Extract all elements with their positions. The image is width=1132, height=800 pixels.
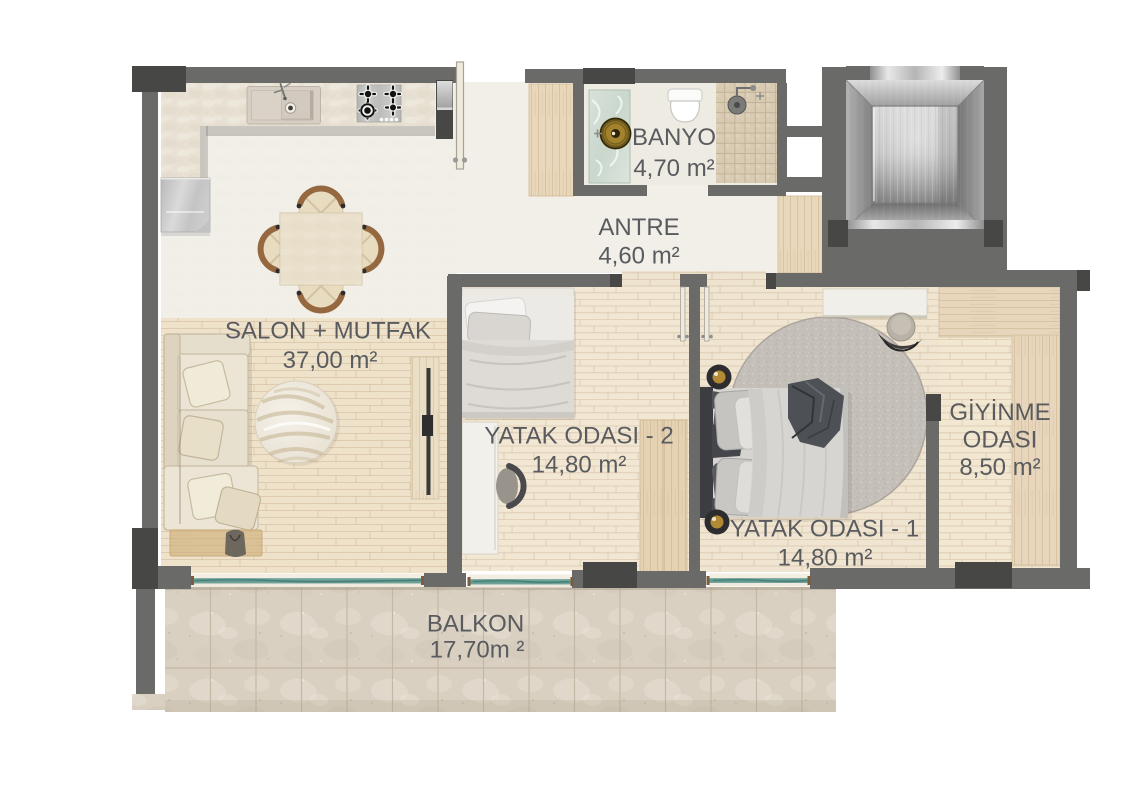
svg-text:GİYİNME: GİYİNME [949, 399, 1050, 426]
svg-text:14,80 m²: 14,80 m² [778, 545, 873, 572]
svg-text:17,70m ²: 17,70m ² [430, 637, 525, 664]
svg-text:4,60 m²: 4,60 m² [598, 243, 679, 270]
svg-text:ANTRE: ANTRE [598, 214, 679, 241]
svg-text:4,70 m²: 4,70 m² [633, 155, 714, 182]
svg-text:8,50 m²: 8,50 m² [959, 454, 1040, 481]
svg-text:BALKON: BALKON [427, 611, 524, 638]
svg-text:SALON + MUTFAK: SALON + MUTFAK [225, 318, 431, 345]
svg-text:BANYO: BANYO [632, 124, 716, 151]
svg-text:ODASI: ODASI [963, 427, 1038, 454]
svg-text:14,80 m²: 14,80 m² [532, 452, 627, 479]
svg-text:37,00 m²: 37,00 m² [283, 347, 378, 374]
svg-text:YATAK ODASI - 1: YATAK ODASI - 1 [730, 516, 919, 543]
svg-text:YATAK ODASI - 2: YATAK ODASI - 2 [484, 423, 673, 450]
